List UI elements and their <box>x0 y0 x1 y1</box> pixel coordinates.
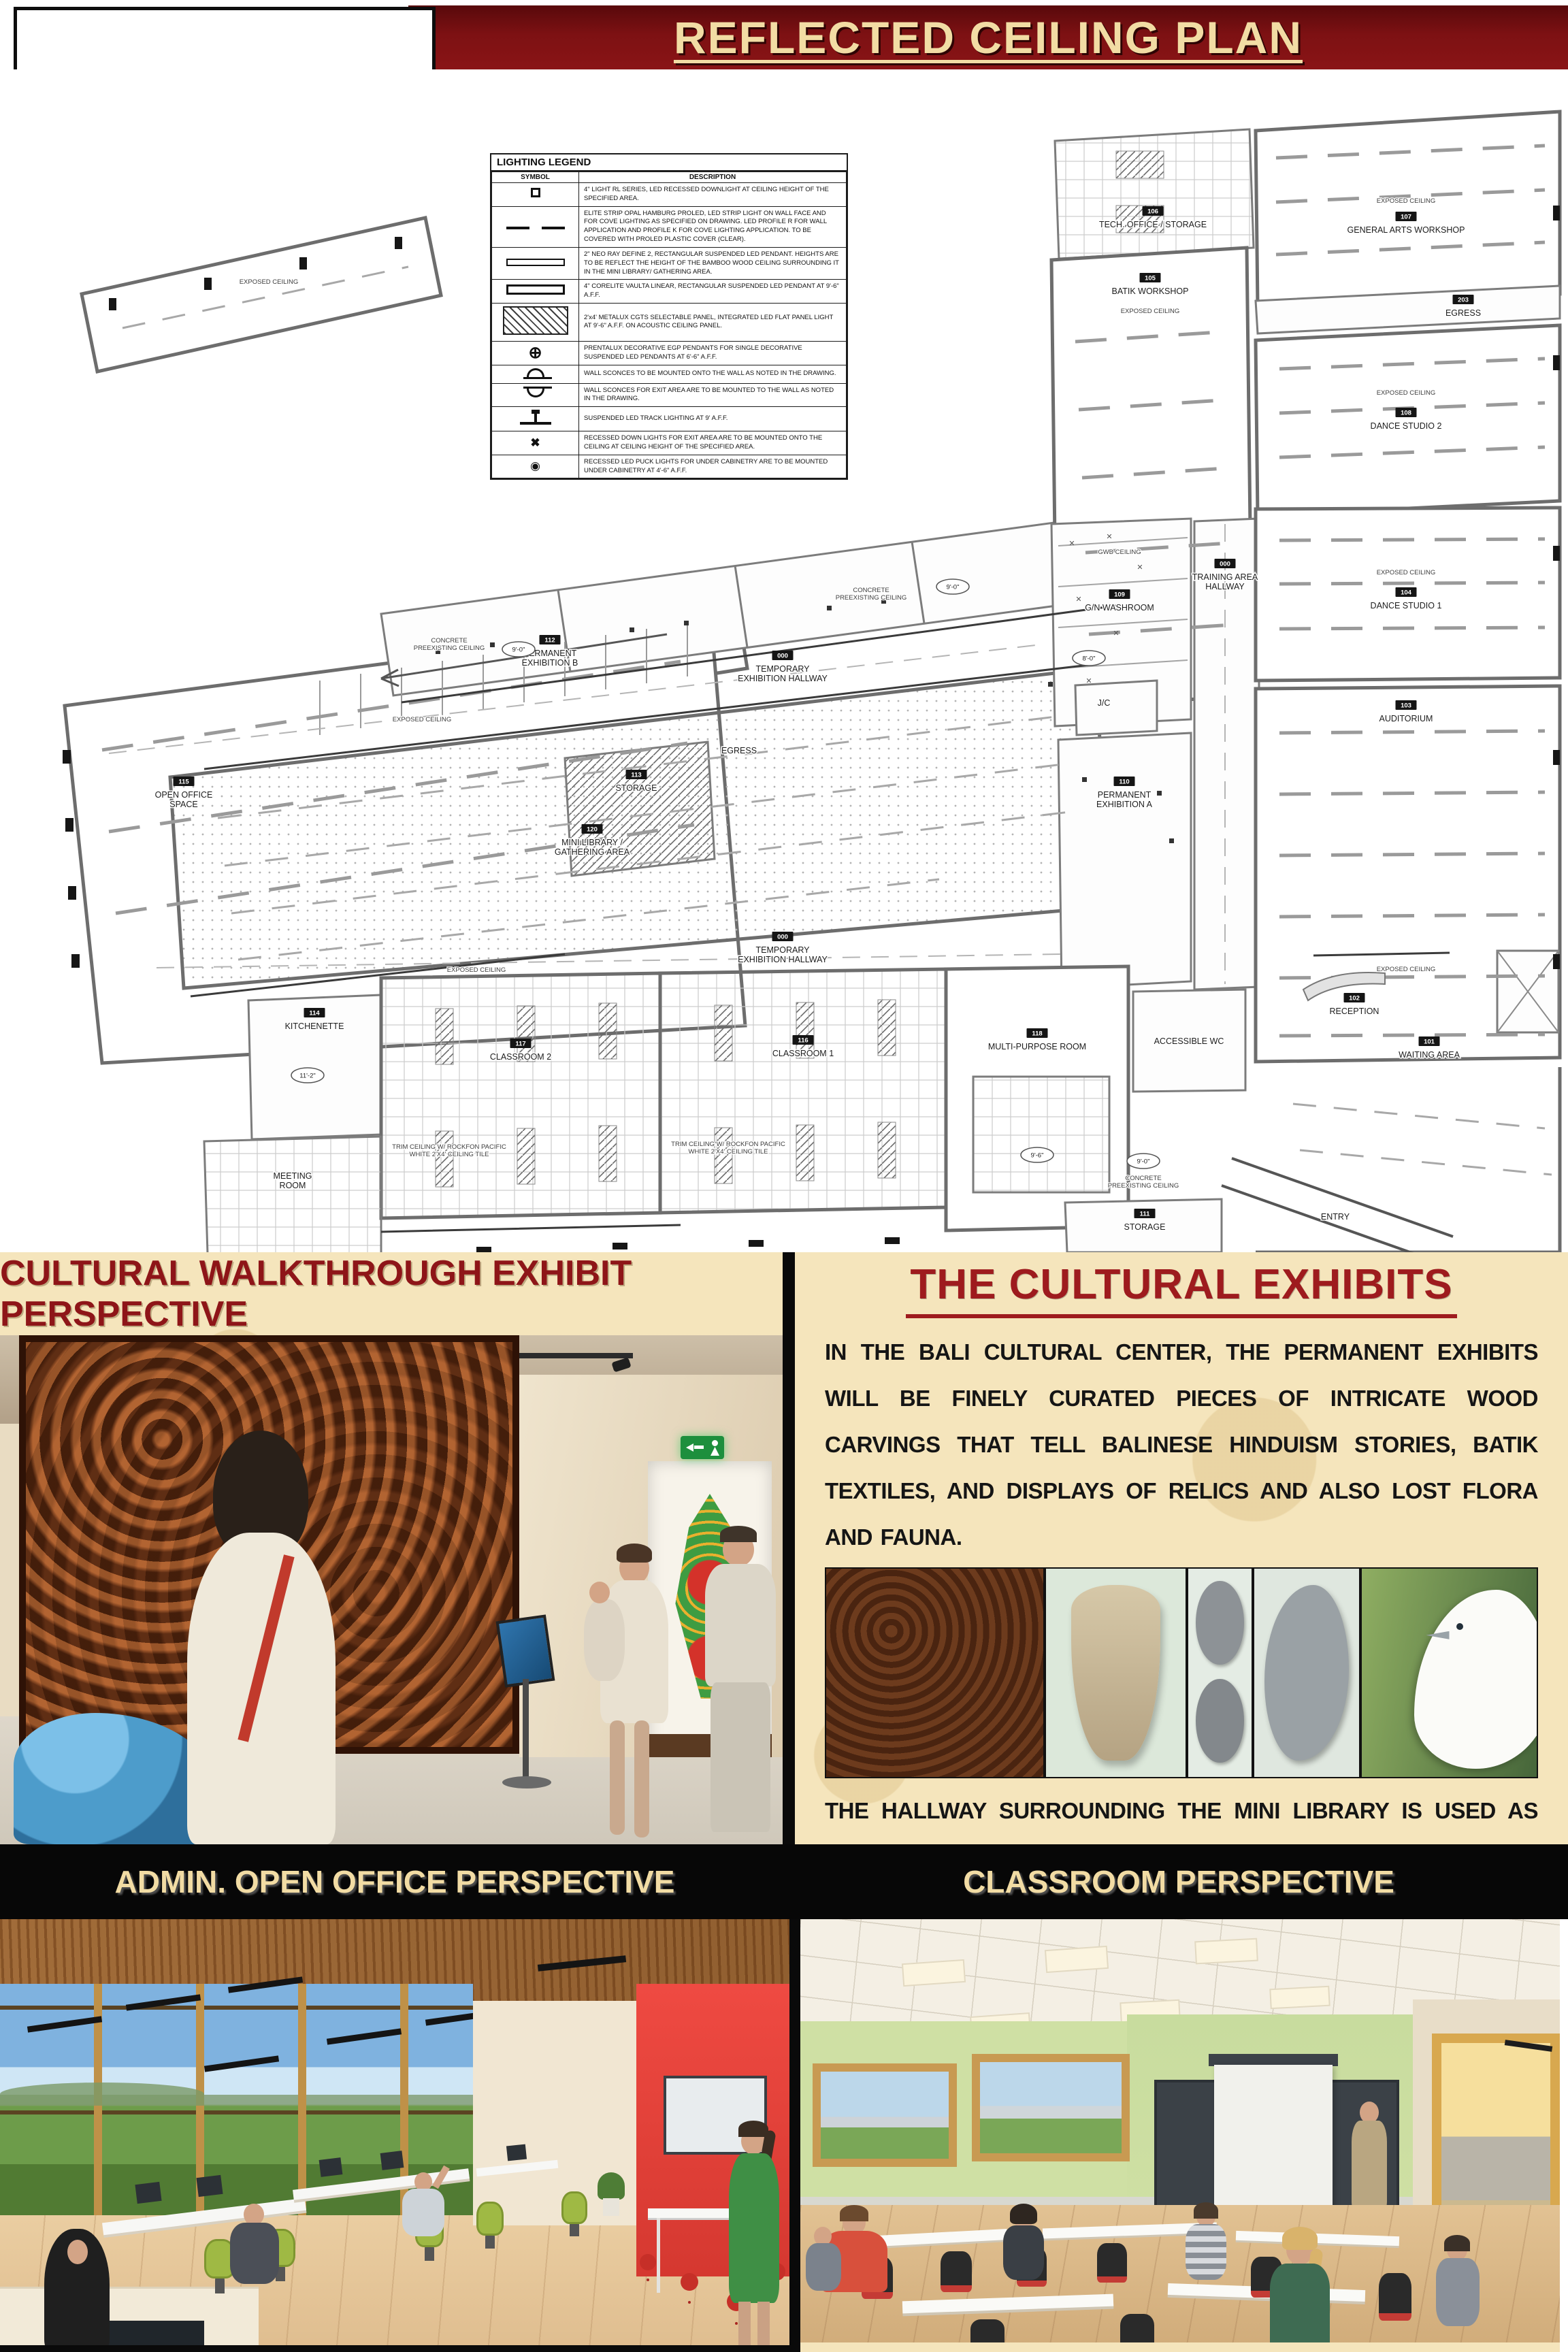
monitor <box>506 2144 527 2161</box>
classroom-title-cell: CLASSROOM PERSPECTIVE <box>789 1844 1568 1919</box>
room-label-j-c: J/C <box>1098 698 1111 708</box>
svg-text:✕: ✕ <box>1068 540 1075 548</box>
legend-row: SUSPENDED LED TRACK LIGHTING AT 9' A.F.F… <box>492 407 847 431</box>
svg-text:EXHIBITION B: EXHIBITION B <box>522 658 578 668</box>
svg-text:CLASSROOM 2: CLASSROOM 2 <box>490 1052 551 1062</box>
svg-text:EGRESS: EGRESS <box>721 746 757 755</box>
sconce-symbol-icon <box>527 368 544 377</box>
ceiling-note: EXPOSED CEILING <box>1377 966 1436 973</box>
person-seated-jacket <box>225 2204 286 2285</box>
legend-description: PRENTALUX DECORATIVE EGP PENDANTS FOR SI… <box>579 341 847 365</box>
legend-title: LIGHTING LEGEND <box>491 154 847 171</box>
legend-description: ELITE STRIP OPAL HAMBURG PROLED, LED STR… <box>579 206 847 247</box>
ceiling-height-bubble: 9'-6" <box>1021 1147 1053 1162</box>
svg-text:EXHIBITION HALLWAY: EXHIBITION HALLWAY <box>738 955 828 964</box>
legend-row: ELITE STRIP OPAL HAMBURG PROLED, LED STR… <box>492 206 847 247</box>
student-small <box>800 2227 848 2295</box>
svg-text:111: 111 <box>1140 1211 1151 1218</box>
svg-text:11'-2": 11'-2" <box>299 1073 316 1080</box>
puck-symbol-icon: ◉ <box>530 460 540 472</box>
svg-text:OPEN OFFICE: OPEN OFFICE <box>155 790 213 800</box>
svg-text:✕: ✕ <box>1113 630 1119 638</box>
svg-text:STORAGE: STORAGE <box>1124 1222 1166 1232</box>
child-figure <box>584 1599 625 1681</box>
svg-text:8'-0": 8'-0" <box>1083 655 1096 663</box>
ceiling-height-bubble: 9'-0" <box>936 579 969 594</box>
svg-text:DANCE STUDIO 1: DANCE STUDIO 1 <box>1371 601 1442 610</box>
legend-col-description: DESCRIPTION <box>579 172 847 183</box>
svg-text:SPACE: SPACE <box>169 800 197 809</box>
legend-row: 2'x4' METALUX CGTS SELECTABLE PANEL, INT… <box>492 303 847 341</box>
legend-description: 4" LIGHT RL SERIES, LED RECESSED DOWNLIG… <box>579 183 847 207</box>
legend-description: SUSPENDED LED TRACK LIGHTING AT 9' A.F.F… <box>579 407 847 431</box>
ceiling-height-bubble: 9'-0" <box>502 642 535 657</box>
exit-sign <box>681 1436 724 1459</box>
svg-text:EGRESS: EGRESS <box>1445 308 1481 318</box>
deco-symbol-icon: ⊕ <box>528 345 542 361</box>
bottom-edge-strip <box>0 2345 789 2352</box>
exit-arrow-icon <box>686 1443 693 1452</box>
exhibit-perspective-title: CULTURAL WALKTHROUGH EXHIBIT PERSPECTIVE <box>0 1253 783 1335</box>
room-label-accessible-wc: ACCESSIBLE WC <box>1154 1036 1224 1046</box>
photo-stone-carving-relic <box>1254 1569 1359 1777</box>
classroom-chair <box>941 2251 972 2292</box>
svg-text:113: 113 <box>631 772 641 779</box>
person-seated-hijab <box>37 2229 112 2352</box>
svg-text:GATHERING AREA: GATHERING AREA <box>555 847 630 857</box>
ceiling-note: EXPOSED CEILING <box>393 716 452 723</box>
presentation-board: REFLECTED CEILING PLAN B C C BALI CULTUR… <box>0 0 1568 2352</box>
svg-text:TECH. OFFICE / STORAGE: TECH. OFFICE / STORAGE <box>1099 220 1207 229</box>
svg-text:000: 000 <box>1220 561 1230 568</box>
svg-text:✕: ✕ <box>1137 563 1143 572</box>
room-label-egress: EGRESS <box>721 746 757 755</box>
svg-text:✕: ✕ <box>1106 533 1112 541</box>
person-woman-back-view <box>174 1431 350 1844</box>
svg-text:000: 000 <box>777 934 788 941</box>
svg-text:9'-0": 9'-0" <box>1137 1158 1150 1166</box>
middle-vertical-divider <box>783 1252 795 1844</box>
classroom-chair <box>1097 2243 1127 2283</box>
svg-text:103: 103 <box>1401 702 1411 710</box>
ceiling-note: EXPOSED CEILING <box>240 278 299 286</box>
ceiling-note: EXPOSED CEILING <box>1377 197 1436 205</box>
svg-text:WAITING AREA: WAITING AREA <box>1399 1050 1460 1060</box>
svg-text:CONCRETE: CONCRETE <box>431 637 467 644</box>
recessed-panel-light <box>1269 1986 1330 2010</box>
legend-description: WALL SCONCES TO BE MOUNTED ONTO THE WALL… <box>579 365 847 383</box>
svg-text:J/C: J/C <box>1098 698 1111 708</box>
svg-text:EXPOSED CEILING: EXPOSED CEILING <box>240 278 299 286</box>
legend-description: 2'x4' METALUX CGTS SELECTABLE PANEL, INT… <box>579 303 847 341</box>
svg-text:MEETING: MEETING <box>274 1171 312 1181</box>
svg-text:117: 117 <box>515 1041 525 1048</box>
room-label-entry: ENTRY <box>1321 1212 1350 1222</box>
recessed-panel-light <box>1194 1938 1258 1965</box>
svg-text:107: 107 <box>1401 214 1411 221</box>
svg-text:112: 112 <box>544 637 555 644</box>
svg-text:GENERAL ARTS WORKSHOP: GENERAL ARTS WORKSHOP <box>1347 225 1465 235</box>
ceiling-height-bubble: 9'-0" <box>1127 1154 1160 1169</box>
cultural-exhibits-section: THE CULTURAL EXHIBITS IN THE BALI CULTUR… <box>795 1252 1568 1844</box>
svg-text:108: 108 <box>1401 410 1411 417</box>
exit-runner-body <box>710 1447 719 1456</box>
legend-row: ⊕PRENTALUX DECORATIVE EGP PENDANTS FOR S… <box>492 341 847 365</box>
ceiling-note: EXPOSED CEILING <box>447 966 506 974</box>
svg-text:ROOM: ROOM <box>280 1181 306 1190</box>
svg-text:9'-6": 9'-6" <box>1031 1152 1044 1160</box>
svg-text:EXHIBITION HALLWAY: EXHIBITION HALLWAY <box>738 674 828 683</box>
photo-stone-tablet-relics <box>1188 1569 1252 1777</box>
svg-text:105: 105 <box>1145 275 1156 282</box>
svg-text:TEMPORARY: TEMPORARY <box>756 945 811 955</box>
kiosk-screen <box>496 1614 555 1687</box>
person-woman-holding-child <box>577 1552 686 1837</box>
legend-description: 2" NEO RAY DEFINE 2, RECTANGULAR SUSPEND… <box>579 247 847 279</box>
svg-text:TRIM CEILING W/ ROCKFON PACIFI: TRIM CEILING W/ ROCKFON PACIFIC <box>392 1143 506 1151</box>
svg-text:STORAGE: STORAGE <box>616 783 657 793</box>
green-office-chair <box>561 2191 587 2224</box>
legend-description: 4" CORELITE VAULTA LINEAR, RECTANGULAR S… <box>579 280 847 304</box>
svg-text:ENTRY: ENTRY <box>1321 1212 1350 1222</box>
photo-wood-carving-relief <box>826 1569 1043 1777</box>
legend-row: WALL SCONCES TO BE MOUNTED ONTO THE WALL… <box>492 365 847 383</box>
svg-text:GWB CEILING: GWB CEILING <box>1098 549 1141 556</box>
ceiling-note: EXPOSED CEILING <box>1377 389 1436 397</box>
svg-text:EXPOSED CEILING: EXPOSED CEILING <box>1377 966 1436 973</box>
exit-arrow-bar <box>694 1445 704 1449</box>
svg-text:BATIK WORKSHOP: BATIK WORKSHOP <box>1112 287 1189 296</box>
bottom-vertical-divider <box>789 1919 800 2352</box>
monitor <box>380 2151 404 2170</box>
reflected-ceiling-plan: ✕✕✕ ✕✕✕ 106TECH. OFFICE / STORAGE107GENE… <box>0 69 1568 1252</box>
svg-text:9'-0": 9'-0" <box>947 584 960 591</box>
sconce-exit-symbol-icon <box>527 389 544 397</box>
svg-text:EXPOSED CEILING: EXPOSED CEILING <box>1121 308 1180 315</box>
svg-text:EXPOSED CEILING: EXPOSED CEILING <box>447 966 506 974</box>
legend-col-symbol: SYMBOL <box>492 172 579 183</box>
recessed-panel-light <box>1045 1946 1109 1973</box>
legend-row: ◉RECESSED LED PUCK LIGHTS FOR UNDER CABI… <box>492 455 847 478</box>
svg-text:118: 118 <box>1032 1030 1042 1038</box>
page-title: REFLECTED CEILING PLAN <box>674 12 1303 63</box>
cultural-exhibits-paragraph-1: IN THE BALI CULTURAL CENTER, THE PERMANE… <box>825 1329 1538 1561</box>
svg-text:MULTI-PURPOSE ROOM: MULTI-PURPOSE ROOM <box>988 1042 1086 1051</box>
svg-text:MINI LIBRARY /: MINI LIBRARY / <box>561 838 623 847</box>
ceiling-note: EXPOSED CEILING <box>1121 308 1180 315</box>
red-stool <box>640 2254 656 2270</box>
classroom-chair <box>1379 2273 1411 2321</box>
ceiling-height-bubble: 11'-2" <box>291 1068 324 1083</box>
svg-text:KITCHENETTE: KITCHENETTE <box>285 1022 344 1031</box>
svg-text:CONCRETE: CONCRETE <box>1125 1175 1161 1182</box>
legend-row: 4" LIGHT RL SERIES, LED RECESSED DOWNLIG… <box>492 183 847 207</box>
pendant4-symbol-icon <box>506 284 565 295</box>
red-stool <box>681 2273 698 2291</box>
legend-description: WALL SCONCES FOR EXIT AREA ARE TO BE MOU… <box>579 383 847 407</box>
svg-text:EXPOSED CEILING: EXPOSED CEILING <box>393 716 452 723</box>
table-leg <box>657 2218 660 2293</box>
ceiling-note: EXPOSED CEILING <box>1377 569 1436 576</box>
projector-screen <box>1214 2065 1333 2216</box>
legend-row: 2" NEO RAY DEFINE 2, RECTANGULAR SUSPEND… <box>492 247 847 279</box>
ceiling-height-bubble: 8'-0" <box>1073 651 1105 666</box>
svg-text:000: 000 <box>777 653 788 660</box>
monitor <box>196 2175 223 2197</box>
svg-text:EXPOSED CEILING: EXPOSED CEILING <box>1377 569 1436 576</box>
person-man-standing <box>696 1533 783 1839</box>
svg-text:114: 114 <box>309 1010 320 1017</box>
person-woman-green-dress <box>718 2123 789 2352</box>
svg-text:102: 102 <box>1349 995 1360 1002</box>
person-seated-waving <box>398 2170 453 2238</box>
exhibit-photo-strip <box>825 1567 1538 1778</box>
green-office-chair <box>476 2202 504 2236</box>
photo-bali-myna-bird <box>1362 1569 1537 1777</box>
classroom-perspective-title: CLASSROOM PERSPECTIVE <box>963 1863 1394 1900</box>
downlight-symbol-icon <box>531 188 540 197</box>
lighting-legend: LIGHTING LEGEND SYMBOL DESCRIPTION 4" LI… <box>490 153 848 480</box>
svg-text:PREEXISTING CEILING: PREEXISTING CEILING <box>1108 1182 1179 1190</box>
svg-text:9'-0": 9'-0" <box>512 647 525 654</box>
bird-eye <box>1456 1623 1463 1630</box>
header-band: REFLECTED CEILING PLAN <box>408 5 1568 69</box>
panel-symbol-icon <box>503 306 568 335</box>
track-symbol-icon <box>520 410 551 425</box>
potted-plant <box>591 2172 632 2220</box>
ceiling-note: GWB CEILING <box>1098 549 1141 556</box>
legend-row: 4" CORELITE VAULTA LINEAR, RECTANGULAR S… <box>492 280 847 304</box>
kiosk-base <box>502 1776 551 1788</box>
legend-row: ✖RECESSED DOWN LIGHTS FOR EXIT AREA ARE … <box>492 431 847 455</box>
svg-text:EXPOSED CEILING: EXPOSED CEILING <box>1377 389 1436 397</box>
window-city-view <box>972 2054 1130 2161</box>
svg-text:RECEPTION: RECEPTION <box>1330 1007 1379 1016</box>
svg-text:106: 106 <box>1147 208 1158 216</box>
office-perspective-title: ADMIN. OPEN OFFICE PERSPECTIVE <box>115 1863 675 1900</box>
svg-text:120: 120 <box>587 826 598 834</box>
hills-silhouette <box>0 2082 204 2106</box>
kiosk-pole <box>523 1679 529 1781</box>
office-title-cell: ADMIN. OPEN OFFICE PERSPECTIVE <box>0 1844 789 1919</box>
svg-text:109: 109 <box>1114 591 1125 599</box>
recessed-panel-light <box>902 1959 966 1987</box>
strip-symbol-icon <box>506 227 565 229</box>
bottom-edge-strip-cream <box>800 2342 1560 2352</box>
svg-text:CONCRETE: CONCRETE <box>853 587 889 594</box>
cultural-exhibits-title: THE CULTURAL EXHIBITS <box>906 1260 1456 1318</box>
svg-text:G/N WASHROOM: G/N WASHROOM <box>1085 603 1154 612</box>
svg-text:115: 115 <box>178 779 189 786</box>
svg-text:104: 104 <box>1401 589 1412 597</box>
svg-text:116: 116 <box>798 1037 808 1045</box>
svg-text:TRAINING AREA: TRAINING AREA <box>1192 572 1258 582</box>
legend-description: RECESSED DOWN LIGHTS FOR EXIT AREA ARE T… <box>579 431 847 455</box>
svg-text:WHITE 2'X4' CEILING TILE: WHITE 2'X4' CEILING TILE <box>689 1148 768 1156</box>
exhibit-walkthrough-render <box>0 1335 783 1844</box>
classroom-render <box>800 1919 1560 2352</box>
student-striped-shirt <box>1179 2206 1233 2281</box>
pendant2-symbol-icon <box>506 259 565 266</box>
svg-text:CLASSROOM 1: CLASSROOM 1 <box>772 1049 834 1058</box>
bottom-title-band: ADMIN. OPEN OFFICE PERSPECTIVE CLASSROOM… <box>0 1844 1568 1919</box>
svg-text:✕: ✕ <box>1085 677 1092 685</box>
admin-open-office-render <box>0 1919 789 2352</box>
legend-description: RECESSED LED PUCK LIGHTS FOR UNDER CABIN… <box>579 455 847 478</box>
svg-text:110: 110 <box>1119 779 1129 786</box>
svg-text:✕: ✕ <box>1075 595 1081 604</box>
svg-text:101: 101 <box>1424 1039 1435 1046</box>
svg-text:EXHIBITION A: EXHIBITION A <box>1096 800 1153 809</box>
svg-text:WHITE 2'X4' CEILING TILE: WHITE 2'X4' CEILING TILE <box>410 1151 489 1158</box>
svg-text:PREEXISTING CEILING: PREEXISTING CEILING <box>414 644 485 652</box>
svg-text:PERMANENT: PERMANENT <box>1098 790 1151 800</box>
svg-text:TRIM CEILING W/ ROCKFON PACIFI: TRIM CEILING W/ ROCKFON PACIFIC <box>671 1141 785 1148</box>
xexit-symbol-icon: ✖ <box>530 437 540 448</box>
svg-text:DANCE STUDIO 2: DANCE STUDIO 2 <box>1371 421 1442 431</box>
monitor <box>135 2182 161 2204</box>
legend-row: WALL SCONCES FOR EXIT AREA ARE TO BE MOU… <box>492 383 847 407</box>
student-right-boy <box>1426 2239 1488 2327</box>
svg-text:TEMPORARY: TEMPORARY <box>756 664 811 674</box>
student-blonde-ponytail <box>1255 2231 1343 2352</box>
svg-text:EXPOSED CEILING: EXPOSED CEILING <box>1377 197 1436 205</box>
monitor <box>319 2157 343 2177</box>
svg-text:HALLWAY: HALLWAY <box>1205 582 1245 591</box>
window-city-view <box>813 2063 957 2167</box>
svg-text:PREEXISTING CEILING: PREEXISTING CEILING <box>836 594 907 602</box>
exhibit-perspective-header: CULTURAL WALKTHROUGH EXHIBIT PERSPECTIVE <box>0 1252 783 1335</box>
photo-stone-vessel-artifact <box>1046 1569 1186 1777</box>
svg-text:203: 203 <box>1458 297 1469 304</box>
exit-runner-icon <box>712 1440 718 1446</box>
svg-text:ACCESSIBLE WC: ACCESSIBLE WC <box>1154 1036 1224 1046</box>
svg-text:AUDITORIUM: AUDITORIUM <box>1379 714 1433 723</box>
student-dark-hair-girl <box>996 2206 1051 2281</box>
